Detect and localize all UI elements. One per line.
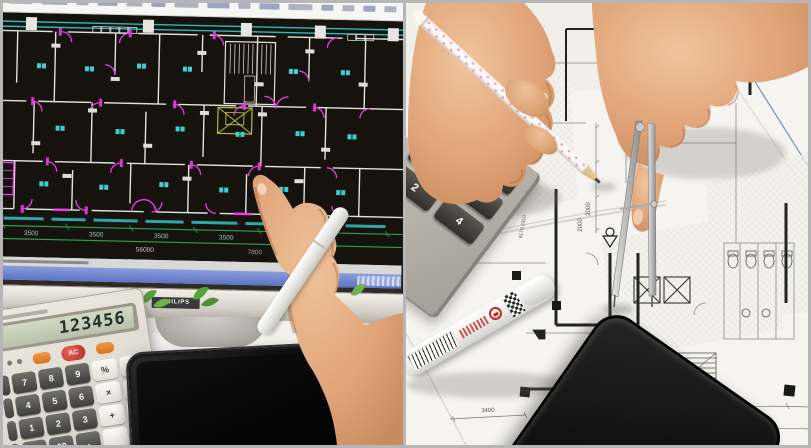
right-photo-blueprint-desk: 3400 9000 30700 2000 2000 9170.2310 0 [406, 3, 808, 445]
compass-lower [612, 121, 657, 307]
hand-holding-compass [592, 3, 808, 232]
left-photo-cad-workstation: 3500 3500 3500 3500 3500 56000 7800 PHIL… [3, 3, 403, 445]
pen-cap-seam [313, 240, 327, 251]
photo-collage: 3500 3500 3500 3500 3500 56000 7800 PHIL… [0, 0, 811, 448]
hands-and-compass [406, 3, 808, 445]
